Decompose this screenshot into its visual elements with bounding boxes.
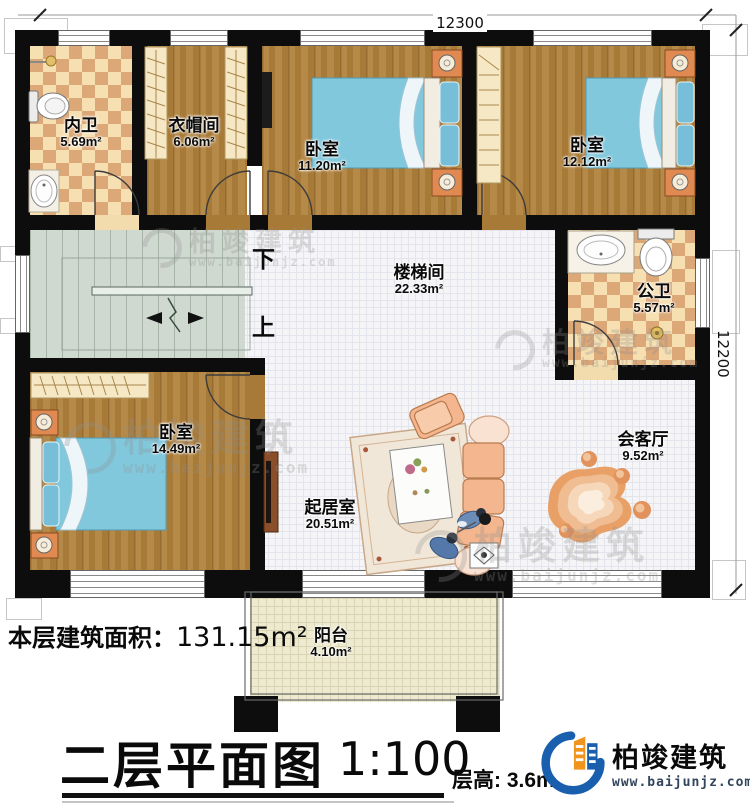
stairs-detail — [62, 258, 252, 350]
floor-plan-page: 柏竣建筑 www.baijunjz.com 柏竣建筑 www.baijunjz.… — [0, 0, 750, 806]
room-area: 12.12m² — [563, 155, 611, 170]
room-name: 会客厅 — [618, 430, 669, 449]
brand-name: 柏竣建筑 — [612, 736, 750, 775]
dimension-right: 12200 — [714, 330, 732, 378]
stair-arrow-left — [146, 312, 162, 324]
room-area: 4.10m² — [310, 645, 351, 660]
room-label-cloakroom: 衣帽间 6.06m² — [169, 116, 220, 150]
plan-scale: 1:100 — [338, 732, 471, 786]
room-name: 衣帽间 — [169, 116, 220, 135]
room-label-reception: 会客厅 9.52m² — [618, 430, 669, 464]
vacuum-icon — [479, 513, 491, 525]
room-label-bedroom1: 卧室 11.20m² — [298, 140, 346, 174]
room-label-shared-bath: 公卫 5.57m² — [633, 282, 674, 316]
stair-down-label: 下 — [252, 240, 275, 274]
brand-url: www.baijunjz.com — [612, 775, 750, 790]
title-underline — [62, 793, 444, 798]
room-name: 内卫 — [60, 116, 101, 135]
page-title: 二层平面图 — [60, 726, 325, 798]
room-label-ensuite-bath: 内卫 5.69m² — [60, 116, 101, 150]
brand-logo: 柏竣建筑 www.baijunjz.com — [540, 726, 750, 800]
room-name: 公卫 — [633, 282, 674, 301]
tv-cabinet — [264, 452, 278, 532]
room-label-living: 起居室 20.51m² — [305, 498, 356, 532]
room-name: 阳台 — [310, 626, 351, 645]
room-area: 14.49m² — [152, 442, 200, 457]
room-name: 楼梯间 — [394, 263, 445, 282]
room-label-bedroom3: 卧室 14.49m² — [152, 423, 200, 457]
room-area: 5.69m² — [60, 135, 101, 150]
room-area: 22.33m² — [394, 282, 445, 297]
room-label-balcony: 阳台 4.10m² — [310, 626, 351, 660]
title-underline-shadow — [62, 801, 454, 803]
stair-arrow-right — [188, 312, 204, 324]
side-table — [470, 543, 498, 568]
room-area: 11.20m² — [298, 159, 346, 174]
room-label-bedroom2: 卧室 12.12m² — [563, 136, 611, 170]
bedroom2-wardrobe — [477, 47, 501, 183]
room-name: 卧室 — [563, 136, 611, 155]
coffee-table — [390, 444, 453, 524]
floor-area-label: 本层建筑面积： — [8, 618, 176, 653]
room-area: 6.06m² — [169, 135, 220, 150]
room-name: 卧室 — [152, 423, 200, 442]
floor-area-value: 131.15m² — [176, 622, 308, 653]
tv — [262, 72, 272, 128]
plan-overlay — [0, 0, 750, 806]
floor-area-total: 本层建筑面积： 131.15m² — [8, 618, 308, 653]
bed — [312, 50, 462, 196]
room-area: 20.51m² — [305, 517, 356, 532]
room-area: 9.52m² — [618, 449, 669, 464]
room-area: 5.57m² — [633, 301, 674, 316]
towel-ring-icon — [46, 56, 56, 66]
bedroom3-closet — [31, 373, 149, 398]
bed — [30, 410, 166, 558]
brand-logo-icon — [540, 726, 606, 800]
room-name: 卧室 — [298, 140, 346, 159]
stair-up-label: 上 — [252, 308, 275, 342]
bed — [586, 50, 695, 196]
dimension-top: 12300 — [433, 14, 487, 32]
room-name: 起居室 — [305, 498, 356, 517]
room-label-stairwell: 楼梯间 22.33m² — [394, 263, 445, 297]
